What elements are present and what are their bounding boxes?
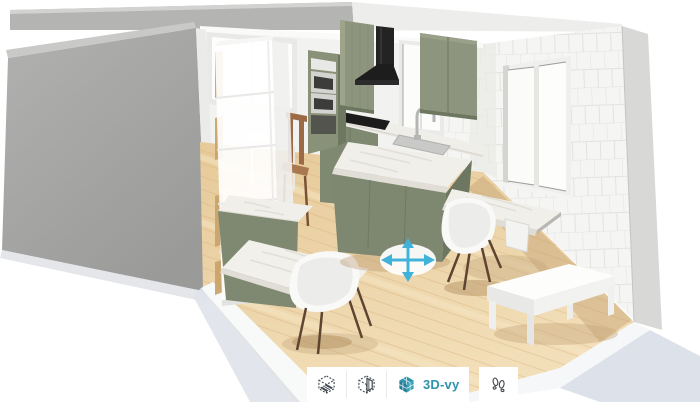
elevation-view-icon bbox=[357, 375, 376, 394]
walkthrough-group bbox=[479, 367, 518, 402]
3d-view-button[interactable]: 3D-vy bbox=[387, 367, 469, 402]
tiled-wall-window[interactable] bbox=[501, 56, 573, 200]
3d-view-icon bbox=[397, 375, 416, 394]
view-switcher: 3D-vy bbox=[307, 367, 469, 402]
wall-cabinet-left[interactable] bbox=[340, 20, 374, 114]
footprints-icon bbox=[489, 375, 508, 394]
wall-cabinet-right[interactable] bbox=[420, 33, 477, 120]
walkthrough-view-button[interactable] bbox=[479, 367, 518, 402]
elevation-view-button[interactable] bbox=[347, 367, 386, 402]
3d-view-label: 3D-vy bbox=[423, 378, 459, 391]
floorplan-view-button[interactable] bbox=[307, 367, 346, 402]
floorplan-view-icon bbox=[317, 375, 336, 394]
kitchen-planner-3d-viewport[interactable]: 3D-vy bbox=[0, 0, 700, 402]
view-toolbar: 3D-vy bbox=[307, 367, 518, 402]
left-exterior-wall[interactable] bbox=[0, 22, 218, 302]
scene-3d-render[interactable] bbox=[0, 0, 700, 402]
